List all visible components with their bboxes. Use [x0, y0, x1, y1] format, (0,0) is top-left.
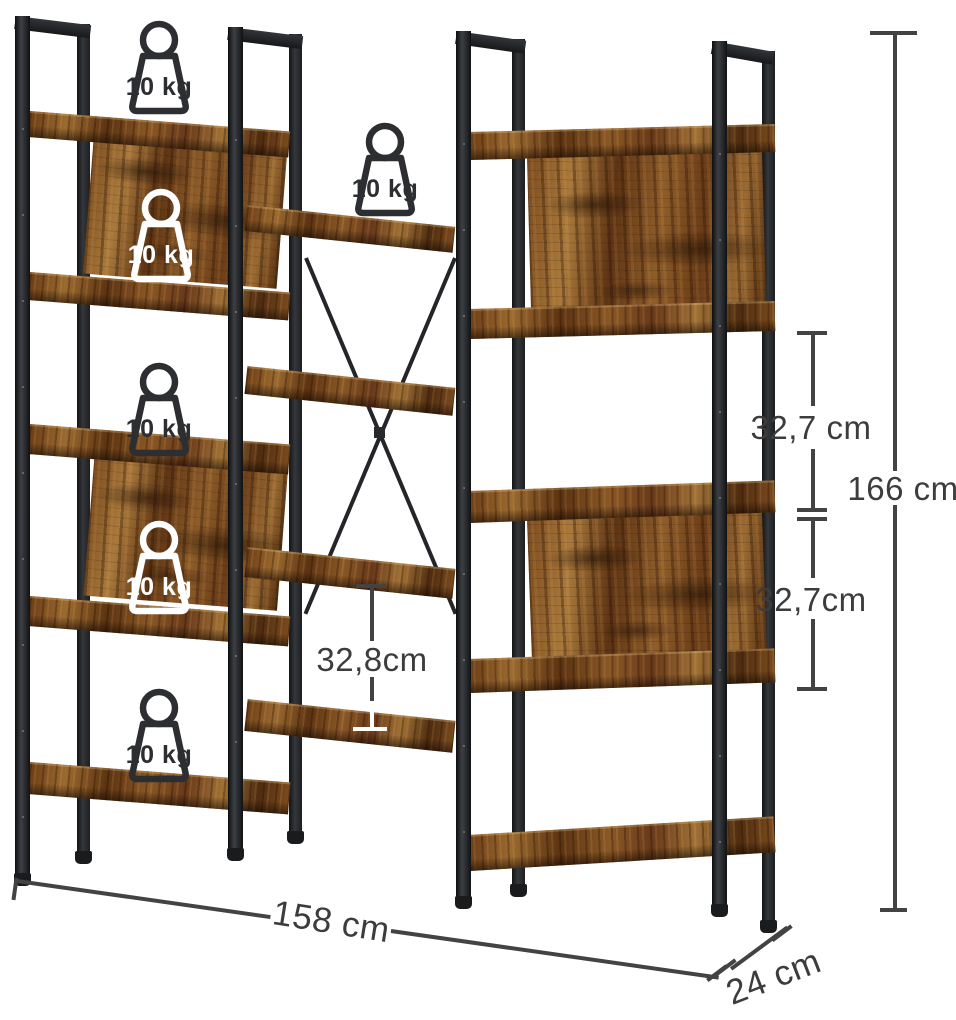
middle-bay-shelf-2	[245, 366, 456, 416]
height-tick-bottom	[880, 908, 907, 912]
middle-gap-line-lower-white	[370, 701, 374, 727]
width-line-right	[391, 929, 719, 979]
middle-gap-line-upper	[370, 587, 374, 641]
bookshelf-product-diagram: 10 kg 10 kg 10 kg 10 kg 10 kg 10 kg 32,8…	[0, 0, 956, 1020]
capacity-weight-icon: 10 kg	[112, 520, 206, 618]
kettlebell-icon	[338, 122, 432, 220]
right-gap-line-2	[811, 449, 815, 509]
frame-left-front-post	[15, 16, 30, 876]
right-lower-gap-label: 32,7cm	[738, 581, 884, 619]
frame-right-back-foot	[760, 920, 777, 933]
kettlebell-icon	[112, 688, 206, 786]
right-gap-line-4	[811, 619, 815, 687]
height-line-upper	[893, 34, 897, 471]
capacity-weight-icon: 10 kg	[112, 688, 206, 786]
capacity-weight-icon: 10 kg	[112, 362, 206, 460]
capacity-label: 10 kg	[112, 73, 206, 102]
cross-brace-connector	[374, 427, 385, 438]
frame-mid1-back-foot	[287, 831, 304, 844]
right-bay-lower-back-panel	[527, 510, 767, 660]
frame-mid2-front-post	[456, 31, 471, 899]
kettlebell-icon	[112, 362, 206, 460]
right-gap-tick-mid-1	[797, 508, 827, 512]
frame-right-front-post	[712, 41, 727, 907]
width-label: 158 cm	[270, 893, 393, 951]
capacity-label: 10 kg	[112, 573, 206, 602]
middle-bay-shelf-4	[244, 699, 455, 753]
frame-mid2-back-post	[512, 39, 525, 887]
frame-mid2-back-foot	[510, 884, 527, 897]
capacity-weight-icon: 10 kg	[338, 122, 432, 220]
right-gap-tick-bottom	[797, 687, 827, 691]
middle-gap-line-lower	[370, 677, 374, 701]
capacity-weight-icon: 10 kg	[114, 188, 208, 286]
right-gap-line-3	[811, 520, 815, 578]
width-line-left	[17, 879, 271, 919]
frame-left-back-foot	[75, 851, 92, 864]
right-bay-upper-back-panel	[527, 150, 766, 324]
kettlebell-icon	[112, 520, 206, 618]
height-line-lower	[893, 505, 897, 909]
frame-mid1-front-post	[228, 27, 243, 851]
right-upper-gap-label: 32,7 cm	[736, 409, 886, 447]
middle-gap-label: 32,8cm	[297, 641, 447, 679]
kettlebell-icon	[112, 20, 206, 118]
frame-mid1-front-foot	[227, 848, 244, 861]
middle-gap-tick-bottom	[353, 727, 387, 731]
kettlebell-icon	[114, 188, 208, 286]
capacity-label: 10 kg	[112, 741, 206, 770]
frame-mid2-front-foot	[455, 896, 472, 909]
capacity-label: 10 kg	[112, 415, 206, 444]
right-gap-line-1	[811, 334, 815, 406]
capacity-weight-icon: 10 kg	[112, 20, 206, 118]
capacity-label: 10 kg	[338, 175, 432, 204]
depth-label: 24 cm	[721, 941, 827, 1013]
capacity-label: 10 kg	[114, 241, 208, 270]
height-label: 166 cm	[838, 470, 956, 508]
frame-right-front-foot	[711, 904, 728, 917]
